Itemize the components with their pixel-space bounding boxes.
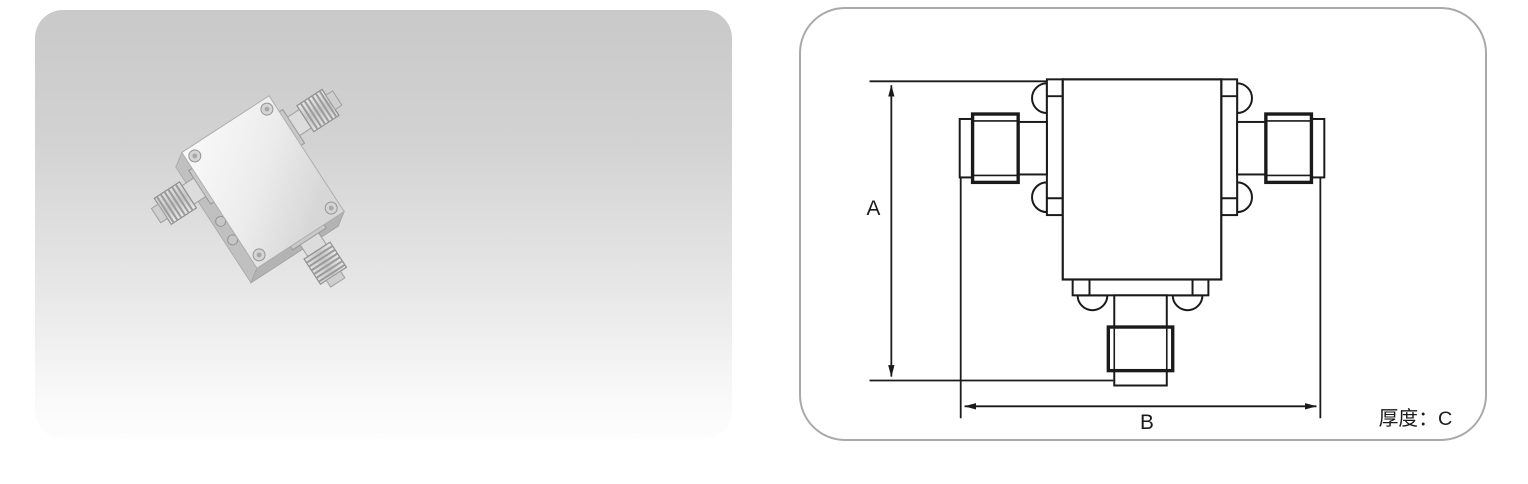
thickness-label: 厚度：C <box>1379 408 1453 430</box>
body-outline <box>1063 79 1222 279</box>
isolator-body <box>135 65 422 345</box>
connector-bottom <box>1108 295 1172 385</box>
dim-label-b: B <box>1140 411 1154 434</box>
connector-right <box>1237 114 1324 182</box>
dim-label-a: A <box>867 197 881 220</box>
connector-left <box>960 114 1047 182</box>
product-photo <box>35 10 732 439</box>
drawing-panel: A B 厚度：C <box>799 7 1487 441</box>
dimension-drawing: A B 厚度：C <box>801 9 1485 439</box>
photo-panel <box>35 10 732 439</box>
